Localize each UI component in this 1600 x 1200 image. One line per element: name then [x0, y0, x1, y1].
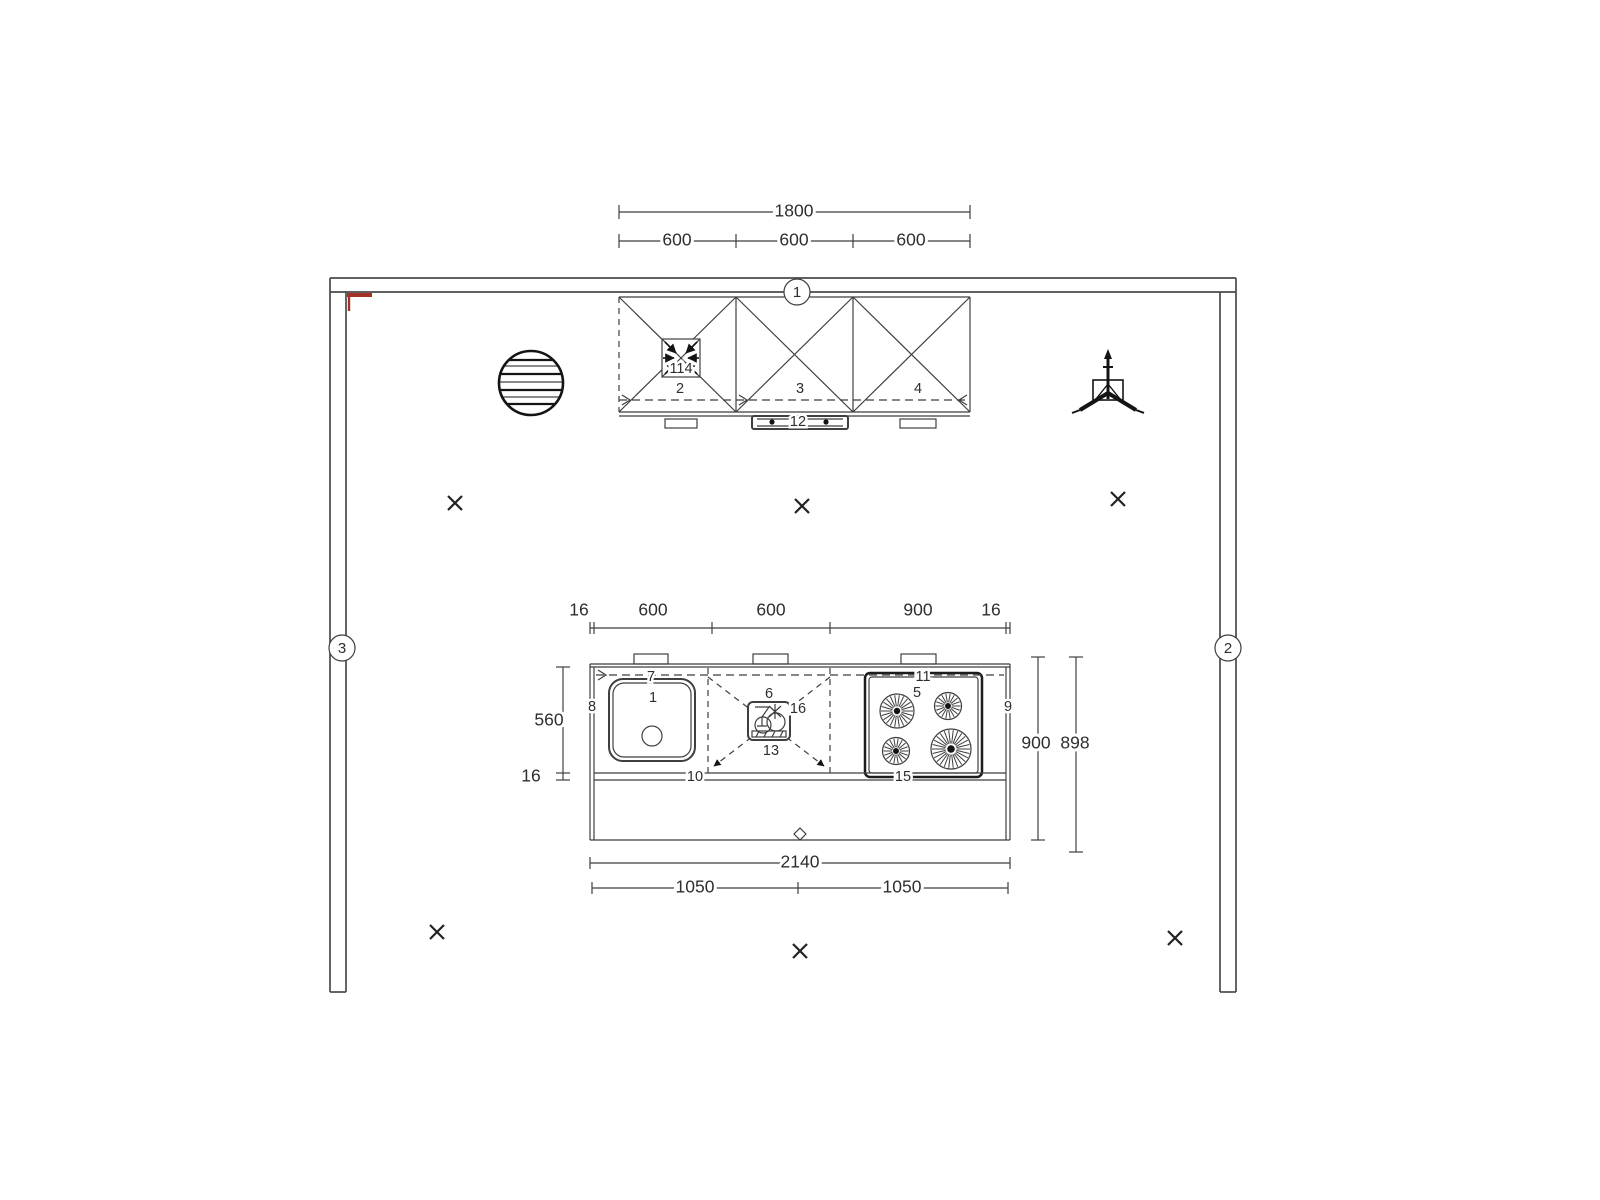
label-cabinet-2: 2	[676, 381, 684, 397]
label-left-panel-8: 8	[588, 699, 596, 715]
dishwasher-symbol	[748, 702, 790, 740]
label-gap-16: 16	[790, 701, 806, 717]
dim-600-a: 600	[662, 230, 691, 250]
kitchen-island: 7 1 8 6 16 13 11 5 9 10 15	[588, 654, 1012, 840]
label-vent-114: 114	[669, 361, 692, 377]
label-dishwasher-front-13: 13	[763, 743, 779, 759]
dim-900-island: 900	[903, 600, 932, 620]
dim-900-right: 900	[1021, 733, 1050, 753]
dim-1050-b: 1050	[883, 877, 922, 897]
dim-16-left: 16	[569, 600, 588, 620]
tap-symbol	[1072, 349, 1144, 413]
island-handle	[753, 654, 788, 664]
label-cabinet-3: 3	[796, 381, 804, 397]
dim-560: 560	[534, 710, 563, 730]
island-dimensions: 16 600 600 900 16 560 16 900 898 2140 10…	[521, 600, 1089, 897]
label-right-panel-9: 9	[1004, 699, 1012, 715]
cooktop	[865, 673, 982, 777]
label-sink-unit-1: 1	[649, 690, 657, 706]
dim-overall-1800: 1800	[775, 201, 814, 221]
x-mark	[1111, 492, 1125, 506]
x-mark	[448, 496, 462, 510]
label-worktop-right-15: 15	[895, 769, 911, 785]
x-mark	[795, 499, 809, 513]
wall-marker-2: 2	[1224, 640, 1232, 657]
dim-2140: 2140	[781, 852, 820, 872]
dim-1050-a: 1050	[676, 877, 715, 897]
island-handle	[634, 654, 668, 664]
dim-16-edge: 16	[521, 766, 540, 786]
floor-plan-drawing: 1800 600 600 600	[0, 0, 1600, 1200]
label-cabinet-4: 4	[914, 381, 922, 397]
dim-600-island-b: 600	[756, 600, 785, 620]
cabinet-handle	[665, 419, 697, 428]
label-dishwasher-6: 6	[765, 686, 773, 702]
island-handle	[901, 654, 936, 664]
x-mark	[430, 925, 444, 939]
floor-plan-canvas: 1800 600 600 600	[0, 0, 1600, 1200]
wall-marker-3: 3	[338, 640, 346, 657]
cabinet-handle	[900, 419, 936, 428]
vent-symbol: 114	[662, 339, 700, 377]
label-sink-worktop-7: 7	[647, 669, 655, 685]
diamond-mark	[794, 828, 806, 840]
label-worktop-left-10: 10	[687, 769, 703, 785]
dim-600-island-a: 600	[638, 600, 667, 620]
dim-16-right: 16	[981, 600, 1000, 620]
dim-600-b: 600	[779, 230, 808, 250]
dim-600-c: 600	[896, 230, 925, 250]
wall-cabinet-dimensions: 1800 600 600 600	[619, 201, 970, 250]
boiler-symbol	[495, 351, 567, 415]
label-rail-12: 12	[790, 414, 806, 430]
wall-corner-highlight	[347, 293, 372, 311]
wall-marker-1: 1	[793, 284, 801, 301]
label-cooktop-worktop-11: 11	[915, 669, 930, 685]
x-mark	[1168, 931, 1182, 945]
room-walls	[330, 278, 1236, 992]
dim-898-right: 898	[1060, 733, 1089, 753]
label-cooktop-5: 5	[913, 685, 921, 701]
x-mark	[793, 944, 807, 958]
